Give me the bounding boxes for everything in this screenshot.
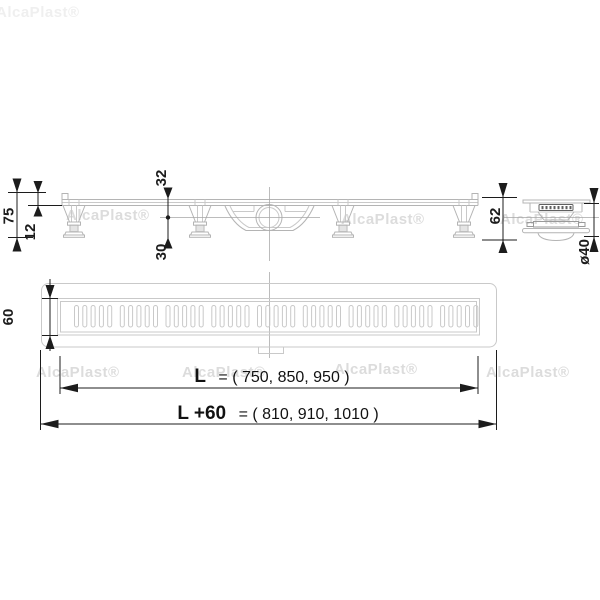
dim-label-75: 75 bbox=[1, 208, 18, 225]
dim-label-L60: L +60 bbox=[177, 403, 226, 424]
dim-values-L60: = ( 810, 910, 1010 ) bbox=[239, 406, 379, 423]
grate-slots bbox=[75, 306, 478, 328]
dim-label-60: 60 bbox=[0, 309, 17, 326]
dimension-62: 62 bbox=[482, 183, 517, 253]
dim-values-L: = ( 750, 850, 950 ) bbox=[218, 369, 349, 386]
dim-label-32: 32 bbox=[153, 170, 170, 187]
dimension-12: 12 bbox=[22, 181, 62, 240]
trap-flange bbox=[534, 222, 579, 228]
dim-label-L: L bbox=[194, 366, 206, 387]
dim-label-30: 30 bbox=[153, 244, 170, 261]
end-section-view bbox=[504, 200, 599, 241]
svg-text:L +60 = ( 810, 910, 10: L +60 = ( 810, 910, 1010 ) bbox=[177, 403, 378, 424]
dim-label-12: 12 bbox=[22, 224, 39, 241]
dim-label-62: 62 bbox=[487, 208, 504, 225]
dimension-L: L = ( 750, 850, 950 ) bbox=[60, 356, 478, 394]
dimension-32: 32 bbox=[153, 170, 173, 218]
dimension-30: 30 bbox=[153, 218, 173, 261]
dim-label-o40: ø40 bbox=[576, 239, 593, 265]
outlet-pipe-dome bbox=[538, 233, 574, 241]
technical-drawing-sheet: AlcaPlast® AlcaPlast® AlcaPlast® AlcaPla… bbox=[0, 0, 600, 600]
top-plan-view bbox=[42, 284, 497, 354]
dimension-L60: L +60 = ( 810, 910, 1010 ) bbox=[41, 350, 497, 430]
dimension-60: 60 bbox=[0, 279, 58, 351]
drain-channel-drawing: 75 12 32 30 62 ø40 bbox=[0, 0, 600, 600]
svg-text:L = ( 750, 850, 950 ): L = ( 750, 850, 950 ) bbox=[194, 366, 349, 387]
grate-cross-section bbox=[539, 205, 573, 211]
center-outlet-tab bbox=[259, 347, 284, 354]
